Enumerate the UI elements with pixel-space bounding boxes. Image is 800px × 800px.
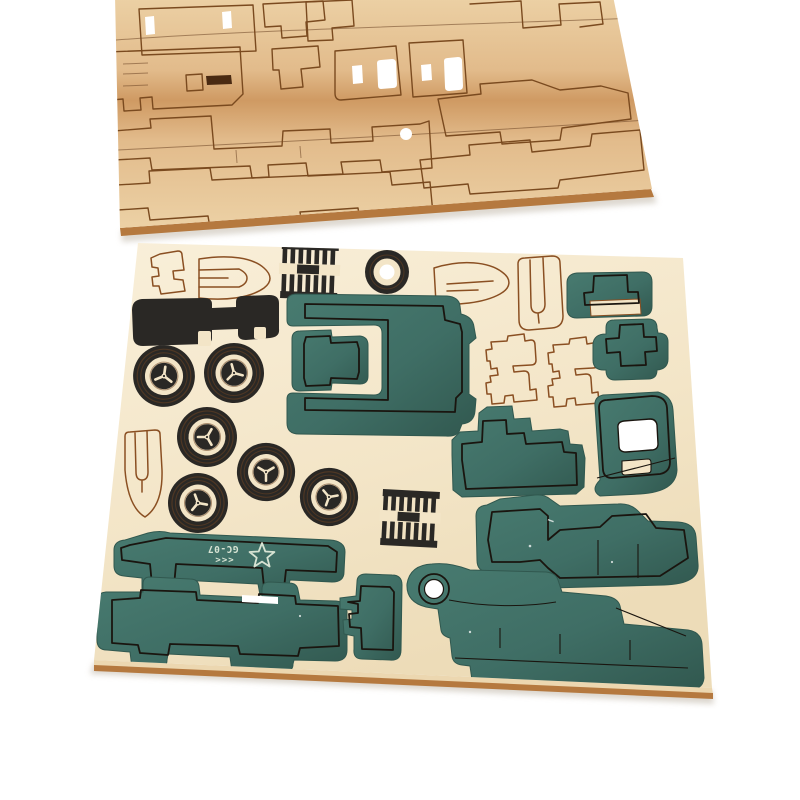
through-slot xyxy=(352,65,363,84)
through-hole-window xyxy=(444,57,463,91)
cab-window-hole xyxy=(618,419,658,452)
chevrons-text: <<< xyxy=(214,554,233,564)
top-sheet xyxy=(107,0,657,242)
top-sheet-surface xyxy=(115,0,652,228)
cab-slot xyxy=(622,459,651,475)
through-hole-round xyxy=(400,128,412,140)
comb-grille-piece xyxy=(378,489,442,548)
through-slot-dark xyxy=(206,75,232,85)
grommet-ring-piece xyxy=(365,250,409,294)
step-piece-tab xyxy=(590,299,641,316)
base-round-hole xyxy=(425,580,444,599)
kit-photo: GC-07 <<< xyxy=(0,0,800,800)
through-slot xyxy=(222,11,232,29)
through-slot xyxy=(421,64,432,81)
through-slot xyxy=(145,16,155,35)
through-hole-window xyxy=(377,59,397,89)
main-sheet: GC-07 <<< xyxy=(90,242,714,704)
connector-notch xyxy=(198,331,211,346)
model-code-text: GC-07 xyxy=(207,543,238,554)
connector-notch xyxy=(254,327,266,339)
